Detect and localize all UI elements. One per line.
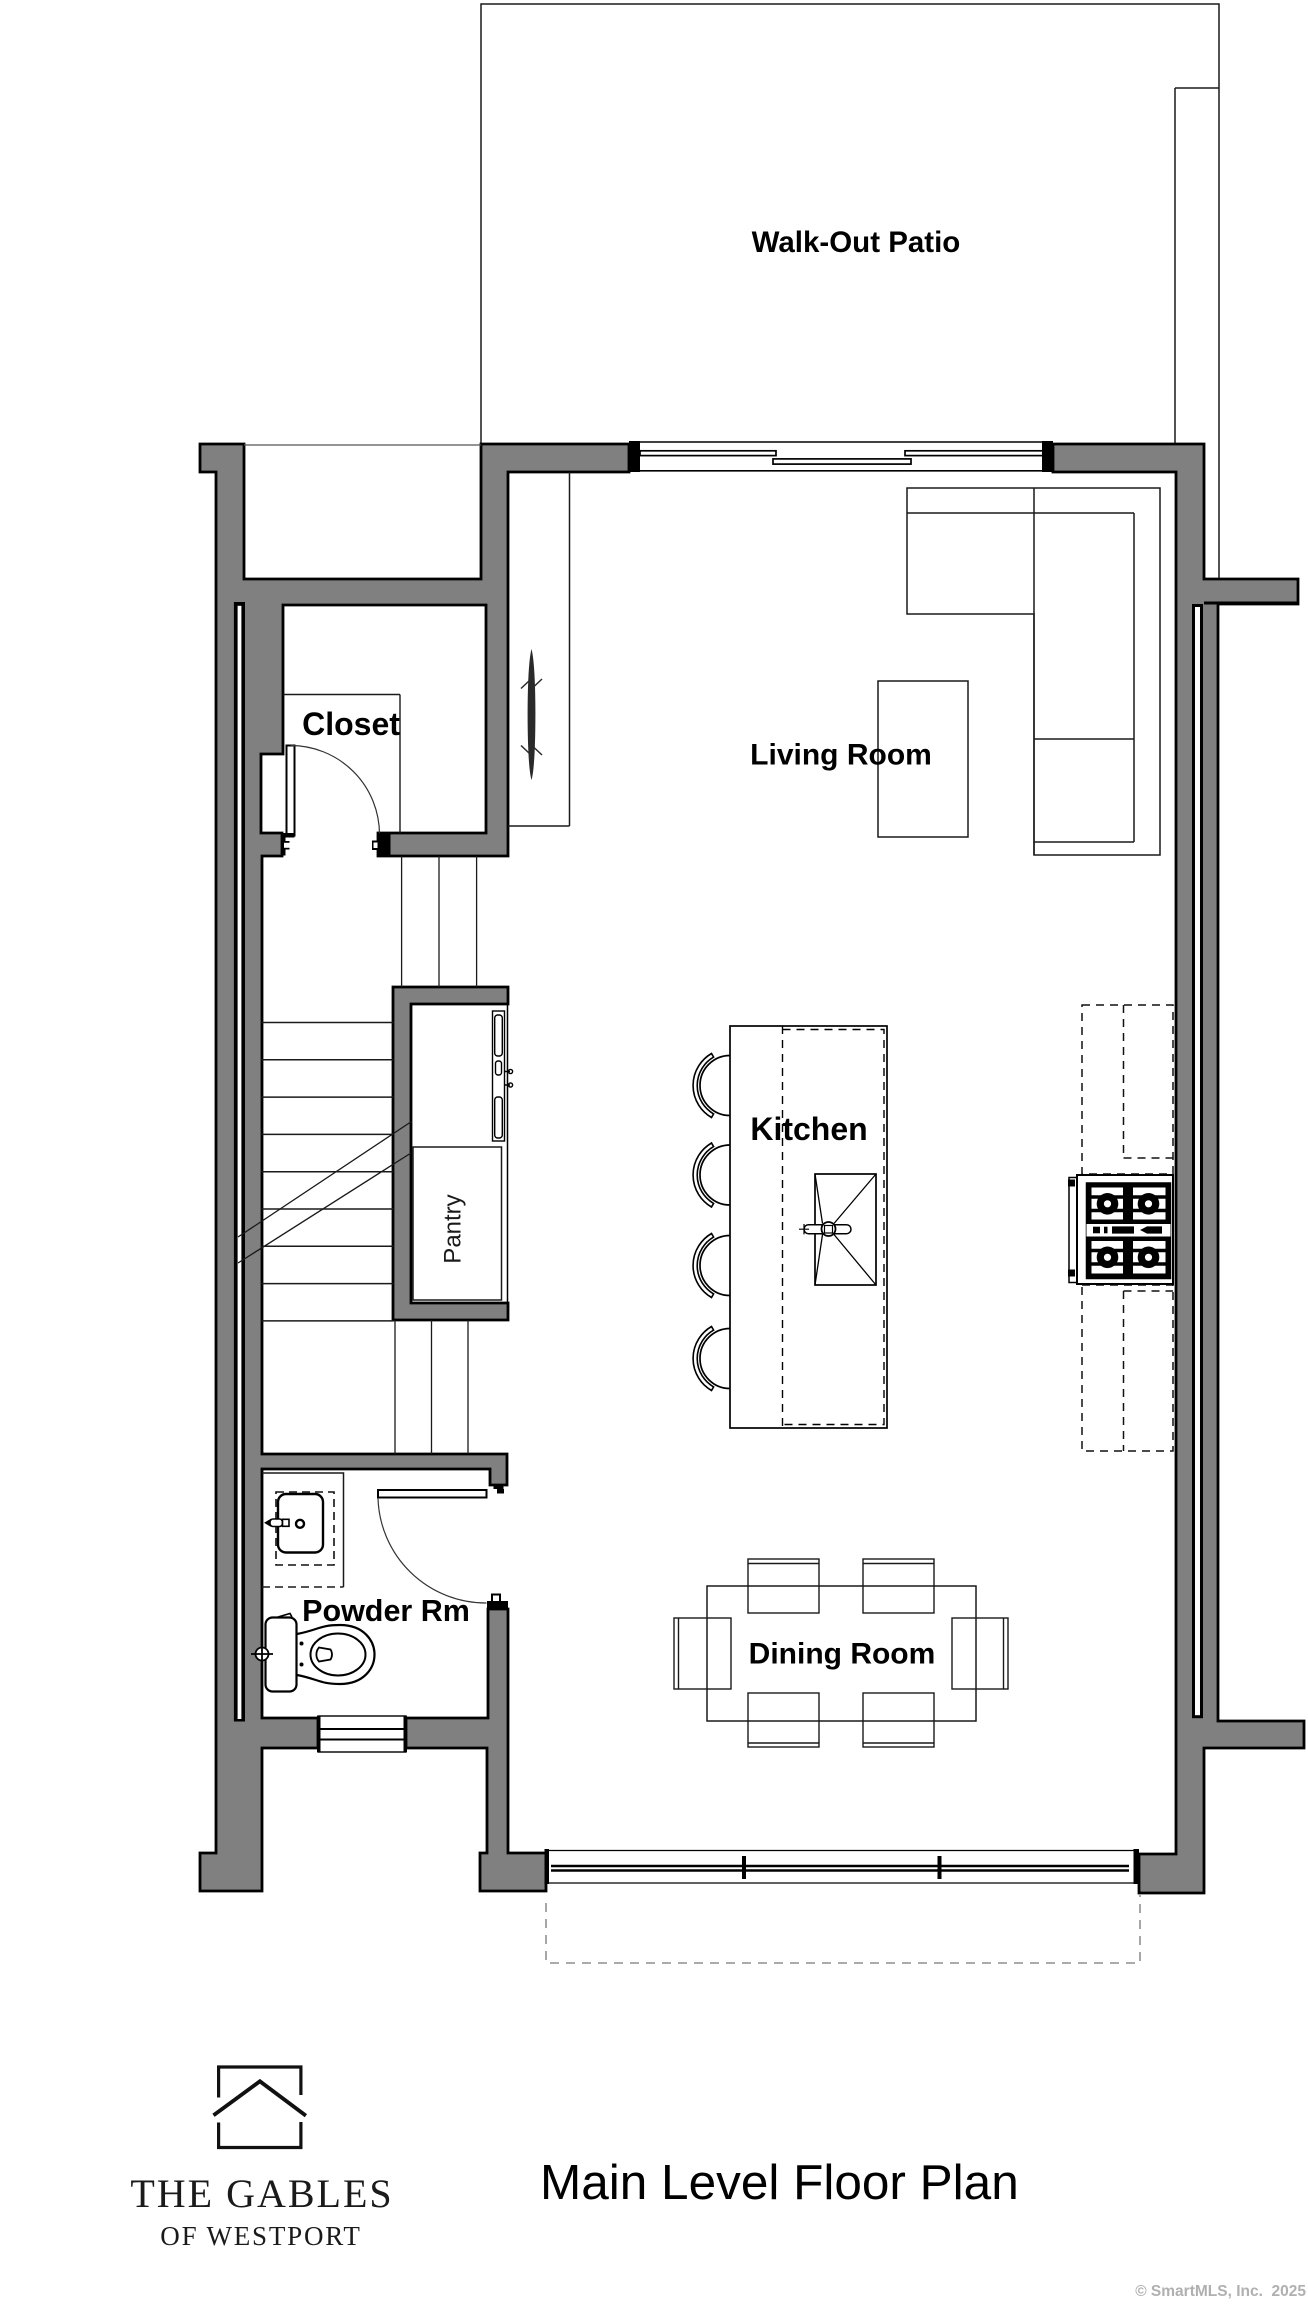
svg-text:Main Level Floor Plan: Main Level Floor Plan xyxy=(540,2155,1019,2210)
svg-text:Kitchen: Kitchen xyxy=(750,1111,867,1147)
svg-text:Walk-Out Patio: Walk-Out Patio xyxy=(752,226,961,259)
svg-text:Closet: Closet xyxy=(302,706,400,742)
svg-text:OF WESTPORT: OF WESTPORT xyxy=(160,2221,361,2251)
svg-text:Powder Rm: Powder Rm xyxy=(302,1594,470,1628)
svg-text:Dining Room: Dining Room xyxy=(749,1638,936,1671)
svg-text:Pantry: Pantry xyxy=(440,1194,467,1263)
svg-text:THE GABLES: THE GABLES xyxy=(130,2171,393,2216)
svg-text:Living Room: Living Room xyxy=(750,739,932,772)
svg-text:© SmartMLS, Inc. 2025: © SmartMLS, Inc. 2025 xyxy=(1135,2283,1306,2300)
